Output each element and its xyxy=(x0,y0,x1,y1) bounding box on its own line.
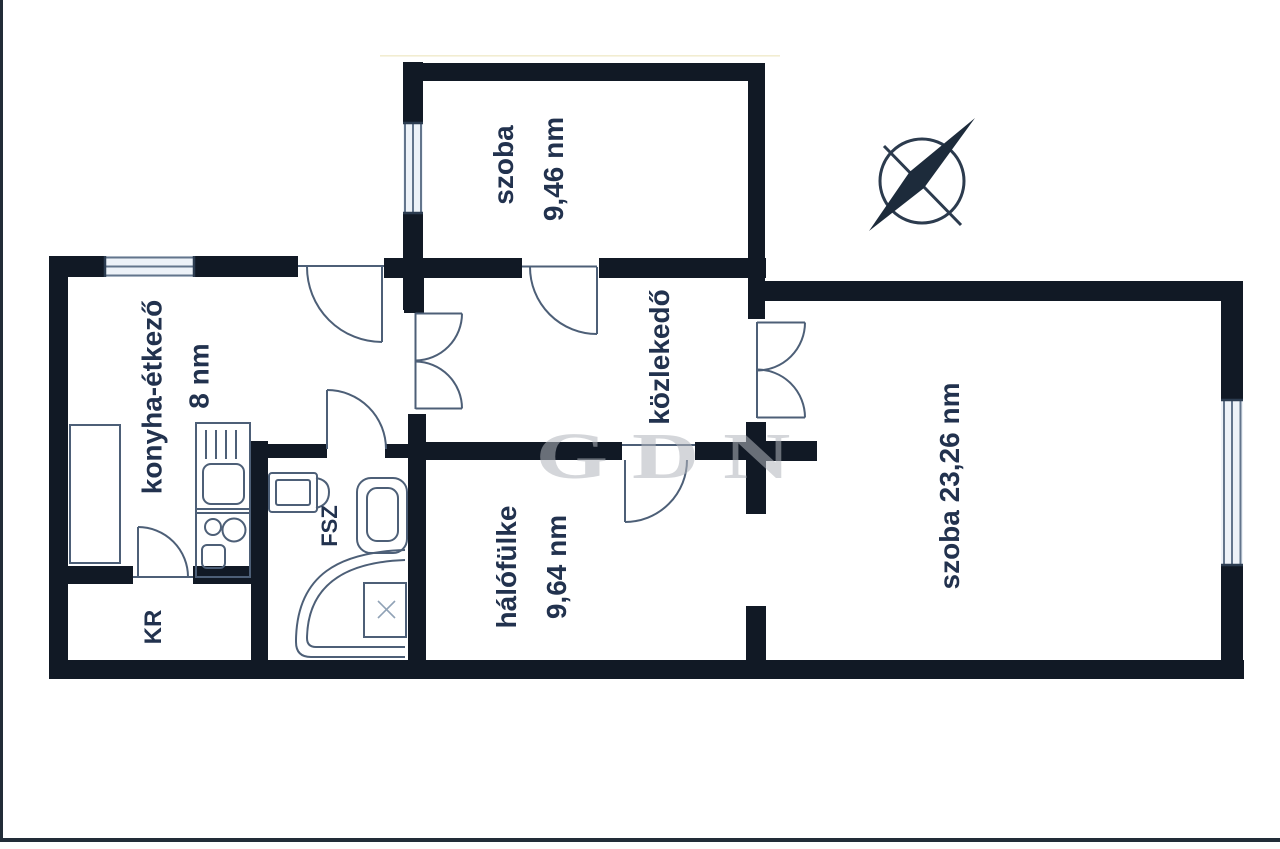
svg-text:9,64 nm: 9,64 nm xyxy=(541,515,572,619)
svg-text:8 nm: 8 nm xyxy=(184,343,215,408)
svg-text:9,46 nm: 9,46 nm xyxy=(538,117,569,221)
svg-text:GDN: GDN xyxy=(536,420,815,493)
svg-text:hálófülke: hálófülke xyxy=(491,506,522,629)
svg-text:KR: KR xyxy=(140,610,167,645)
svg-text:konyha-étkező: konyha-étkező xyxy=(137,300,168,495)
svg-text:FSZ: FSZ xyxy=(317,505,342,547)
svg-text:szoba 23,26 nm: szoba 23,26 nm xyxy=(934,383,965,590)
svg-text:szoba: szoba xyxy=(488,125,519,205)
svg-text:közlekedő: közlekedő xyxy=(644,289,675,424)
